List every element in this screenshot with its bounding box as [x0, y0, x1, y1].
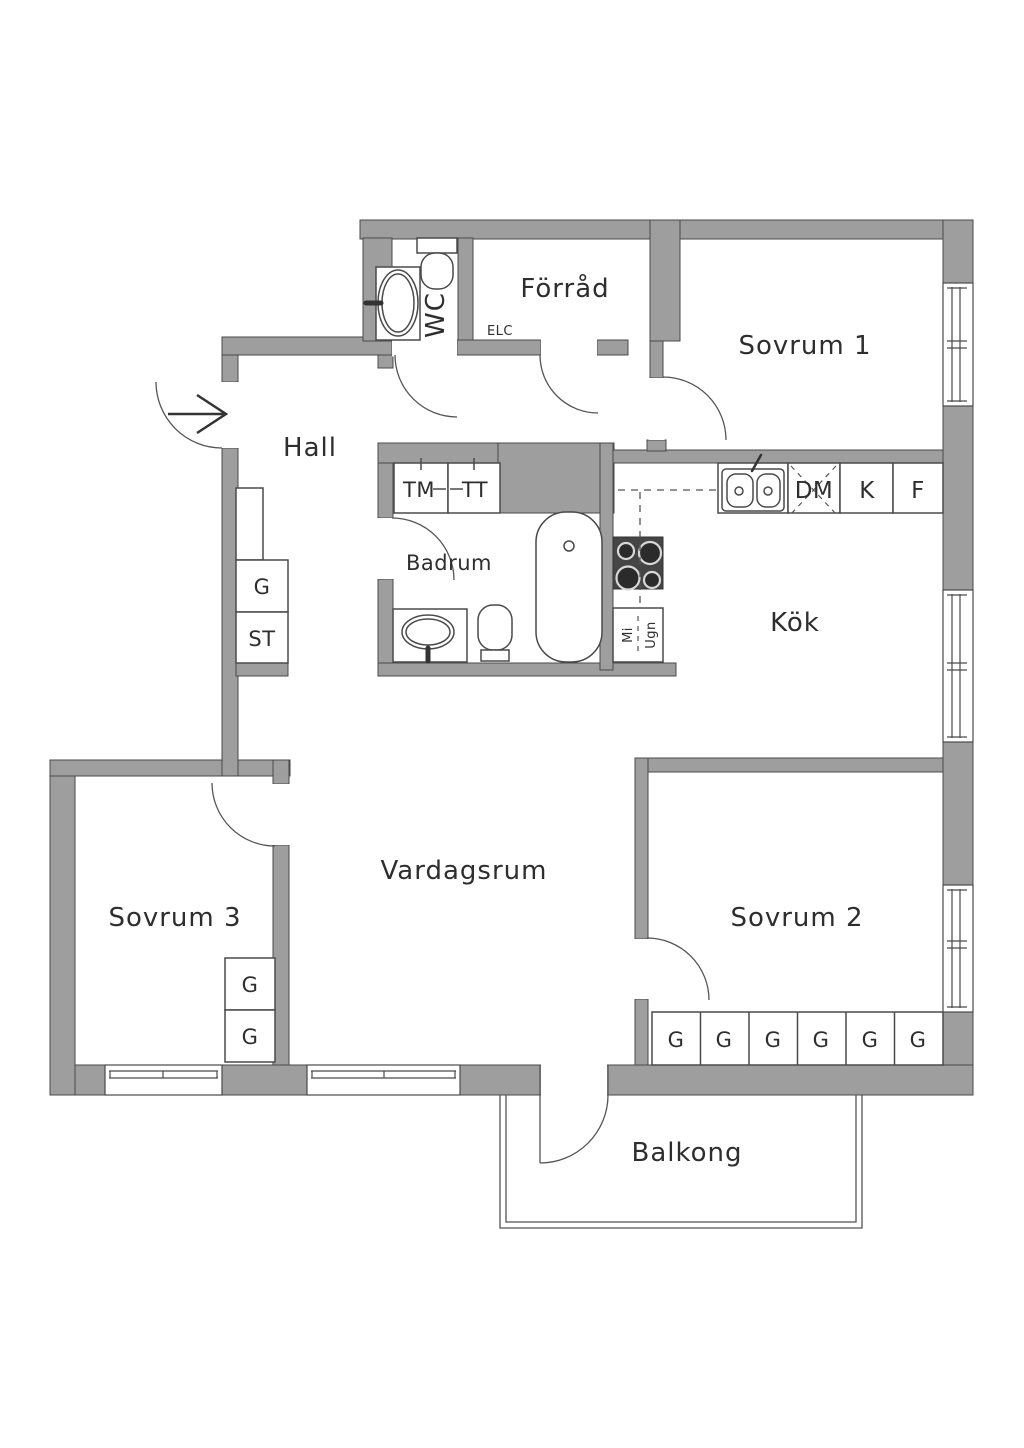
wc-door-swing [395, 355, 457, 417]
wall-sovrum1-left-thin [650, 341, 663, 378]
label-elc: ELC [487, 324, 513, 339]
wall-sovrum2-left-upper [635, 758, 648, 939]
window-sovrum2 [943, 885, 973, 1012]
balcony-door-opening [541, 1064, 607, 1097]
bathtub-icon [536, 512, 602, 662]
room-label-kok: Kök [770, 608, 820, 638]
label-g-sovrum3-1: G [242, 973, 259, 997]
wall-badrum-left-upper [378, 463, 393, 518]
sovrum2-wardrobe-row [652, 1012, 943, 1065]
label-g-sovrum2-3: G [765, 1028, 782, 1052]
badrum-sink-icon [393, 609, 467, 662]
label-g-sovrum3-2: G [242, 1025, 259, 1049]
room-label-sovrum3: Sovrum 3 [108, 903, 241, 933]
label-tm: TM [402, 478, 435, 502]
label-st-hall: ST [248, 627, 275, 651]
sovrum1-door-opening [649, 378, 665, 440]
sovrum2-door-swing [647, 938, 709, 1000]
label-dm: DM [795, 478, 834, 504]
wall-badrum-left-lower [378, 579, 393, 676]
room-label-sovrum1: Sovrum 1 [738, 331, 871, 361]
wall-closet-stub [236, 663, 288, 676]
label-k: K [859, 478, 875, 504]
label-f: F [911, 478, 925, 504]
sovrum3-door-opening [272, 784, 291, 845]
room-label-balkong: Balkong [631, 1138, 742, 1168]
sovrum3-door-swing [212, 783, 275, 846]
wall-sovrum2-top [635, 758, 943, 772]
fixtures [225, 238, 943, 1065]
wall-band-forrad-right [597, 340, 628, 355]
sovrum1-door-swing [663, 377, 726, 440]
room-label-badrum: Badrum [406, 551, 492, 575]
room-label-hall: Hall [283, 433, 337, 463]
label-tt: TT [461, 478, 488, 502]
window-sovrum3 [105, 1065, 222, 1095]
label-g-sovrum2-2: G [716, 1028, 733, 1052]
forrad-door-swing [540, 355, 598, 413]
hall-niche [236, 488, 263, 560]
label-ugn: Ugn [644, 621, 659, 649]
wall-block-center [498, 443, 614, 513]
sovrum2-door-opening [634, 939, 650, 999]
wall-wc-forrad-divider [458, 238, 473, 342]
room-label-wc: WC [421, 292, 451, 338]
floor-plan: Hall WC Förråd ELC Sovrum 1 Badrum Kök V… [0, 0, 1024, 1448]
wall-badrum-kitchen-bottom [378, 663, 676, 676]
wall-sovrum3-right-stub [273, 760, 289, 784]
label-g-sovrum2-4: G [813, 1028, 830, 1052]
label-g-sovrum2-5: G [862, 1028, 879, 1052]
wall-sovrum1-door-jamb [647, 440, 666, 451]
window-sovrum1 [943, 283, 973, 406]
badrum-door-opening [377, 518, 395, 579]
wall-band-badrum-top [378, 443, 499, 463]
entrance-arrow-icon [168, 395, 226, 433]
label-g-sovrum2-1: G [668, 1028, 685, 1052]
label-g-hall: G [254, 575, 271, 599]
wall-kitchen-top [613, 450, 943, 463]
wall-sovrum3-top [50, 760, 290, 776]
room-label-sovrum2: Sovrum 2 [730, 903, 863, 933]
room-label-vardagsrum: Vardagsrum [381, 856, 548, 886]
window-kok [943, 590, 973, 742]
stove-icon [613, 537, 663, 590]
label-g-sovrum2-6: G [910, 1028, 927, 1052]
wc-toilet-icon [417, 238, 457, 289]
wall-wc-door-jamb [378, 355, 393, 368]
window-vardagsrum [307, 1065, 460, 1095]
room-label-forrad: Förråd [520, 273, 609, 304]
balcony-door-swing [540, 1095, 608, 1163]
wall-band-wc-forrad [457, 340, 541, 355]
forrad-door-opening [541, 339, 597, 357]
wall-forrad-sovrum1 [650, 220, 680, 341]
floor-plan-page: Hall WC Förråd ELC Sovrum 1 Badrum Kök V… [0, 0, 1024, 1448]
badrum-toilet-icon [478, 605, 512, 661]
wc-door-opening [392, 339, 457, 357]
label-mi: Mi [621, 627, 636, 643]
wall-left-sovrum3 [50, 760, 75, 1095]
wall-sovrum2-left-lower [635, 999, 648, 1065]
